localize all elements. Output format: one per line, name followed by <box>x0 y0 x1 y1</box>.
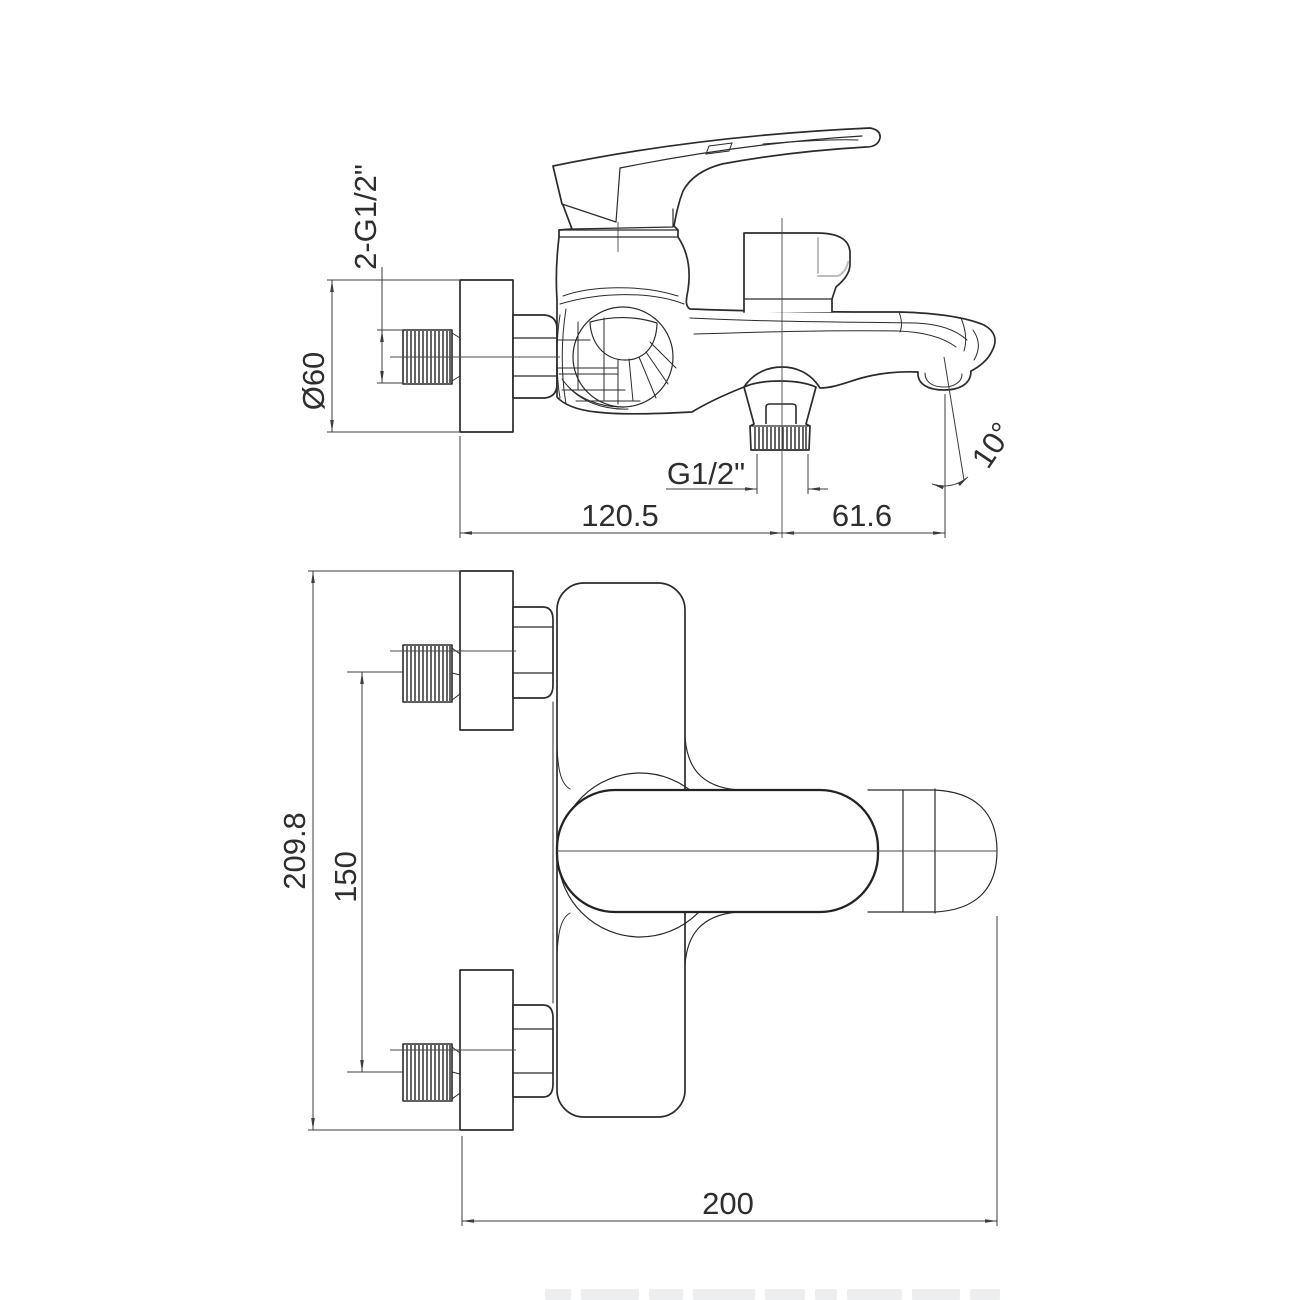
side-shower-outlet-fitting <box>744 381 816 450</box>
dim-209-8: 209.8 <box>277 571 460 1130</box>
front-view <box>390 571 997 1130</box>
side-wall-flange <box>460 280 513 432</box>
watermark-cutoff <box>545 1289 1015 1300</box>
dim-label-2g12: 2-G1/2" <box>348 164 383 270</box>
dim-150: 150 <box>328 672 403 1072</box>
front-upper-nut <box>513 607 553 698</box>
dim-label-200: 200 <box>702 1186 754 1221</box>
front-lower-nut <box>513 1005 553 1097</box>
dim-2-g12: 2-G1/2" <box>348 164 403 383</box>
dim-label-g12: G1/2" <box>667 456 745 491</box>
side-hex-nut <box>513 315 557 398</box>
dim-g12-outlet: G1/2" <box>666 454 828 494</box>
front-upper-flange <box>460 571 513 730</box>
front-upper-thread <box>403 645 460 702</box>
dim-label-d60: Ø60 <box>296 352 331 411</box>
dim-label-61-6: 61.6 <box>832 498 892 533</box>
dim-label-209-8: 209.8 <box>277 812 312 890</box>
front-lower-thread <box>403 1044 460 1101</box>
dim-label-10deg: 10° <box>965 416 1020 474</box>
dim-label-120-5: 120.5 <box>581 498 659 533</box>
faucet-dimension-drawing: Ø60 2-G1/2" G1/2" 120.5 61.6 10° <box>0 0 1300 1300</box>
side-diverter-knob <box>744 233 850 312</box>
dim-label-150: 150 <box>328 851 363 903</box>
side-view <box>403 128 995 450</box>
drawing-sheet: Ø60 2-G1/2" G1/2" 120.5 61.6 10° <box>0 0 1300 1300</box>
